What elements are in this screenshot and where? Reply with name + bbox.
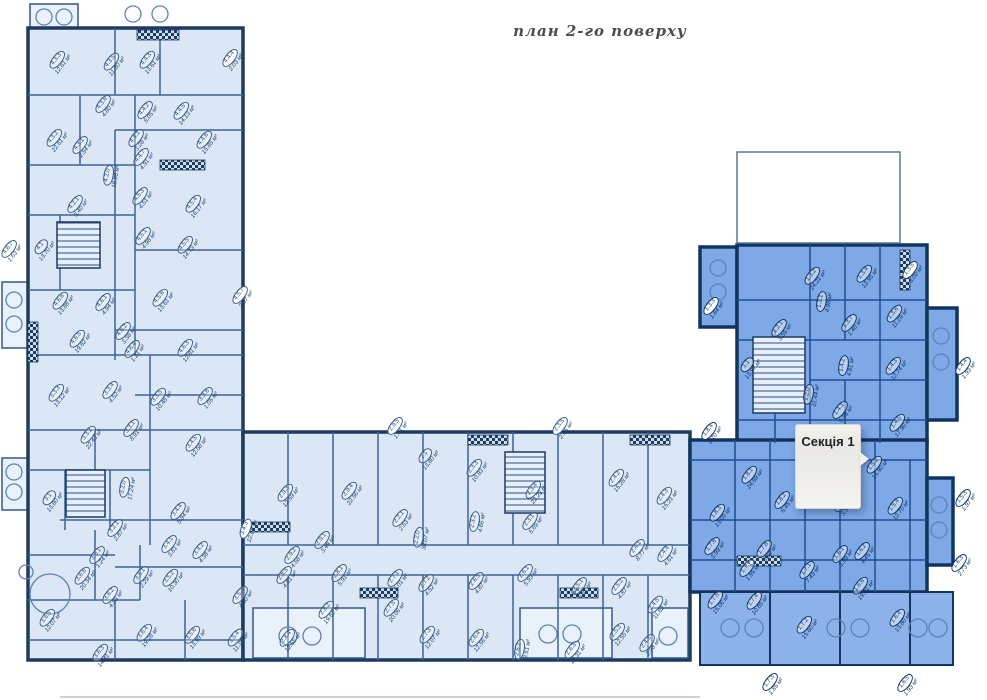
building-light [28,28,690,660]
floor-plan-drawing [0,0,987,700]
building-highlight [690,245,957,592]
roof-outline [737,152,900,243]
section-badge-arrow [860,452,869,466]
page-title: план 2-го поверху [455,22,745,40]
section-badge[interactable]: Секція 1 [795,424,861,509]
floor-plan-canvas: план 2-го поверху 4.3.312.61 м²4.3.511.3… [0,0,987,700]
